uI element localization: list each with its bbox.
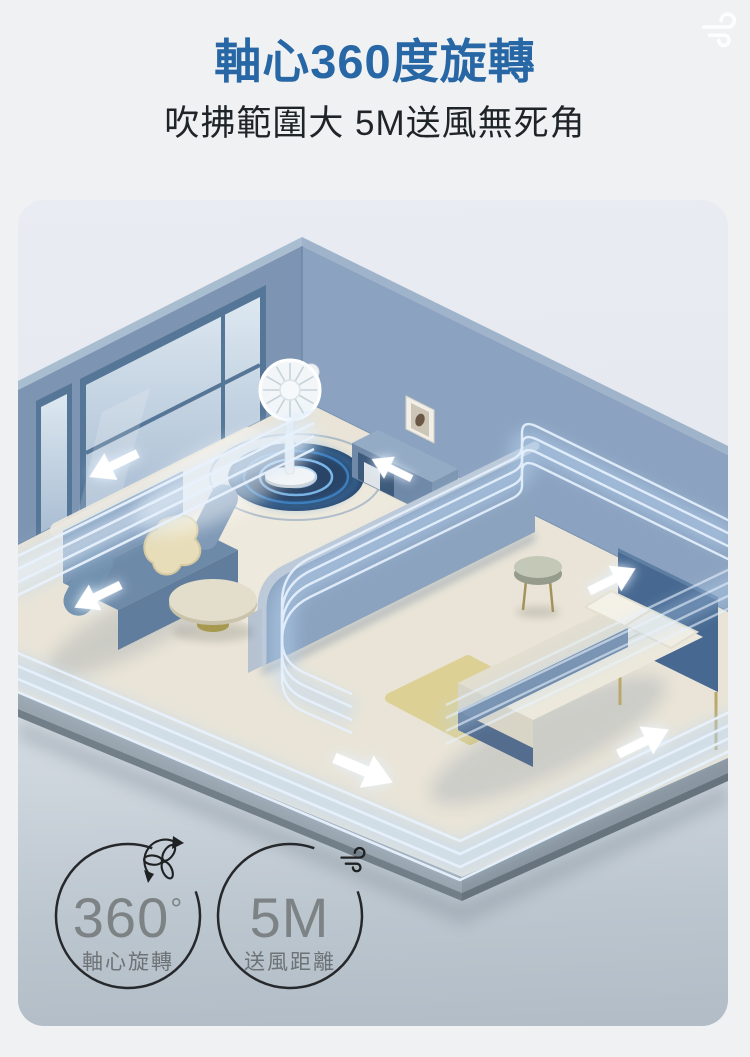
header: 軸心360度旋轉 吹拂範圍大 5M送風無死角 [0,0,750,146]
badge-rotation: 360° 軸心旋轉 [48,828,224,1004]
badge-label: 送風距離 [210,946,370,976]
page-subtitle: 吹拂範圍大 5M送風無死角 [0,102,750,146]
page-title: 軸心360度旋轉 [0,34,750,90]
wind-icon [698,6,744,52]
promo-page: { "page": { "background_color": "#f0f1f3… [0,0,750,1057]
badge-value: 5M [210,880,370,948]
rotating-fan-blades-icon [144,836,184,883]
badge-label: 軸心旋轉 [48,946,208,976]
badge-value: 360° [48,880,208,948]
badge-distance: 5M 送風距離 [210,828,386,1004]
wind-icon [341,848,364,871]
room-illustration-card: 360° 軸心旋轉 5M 送風距離 [18,200,728,1026]
coffee-table [169,579,257,642]
